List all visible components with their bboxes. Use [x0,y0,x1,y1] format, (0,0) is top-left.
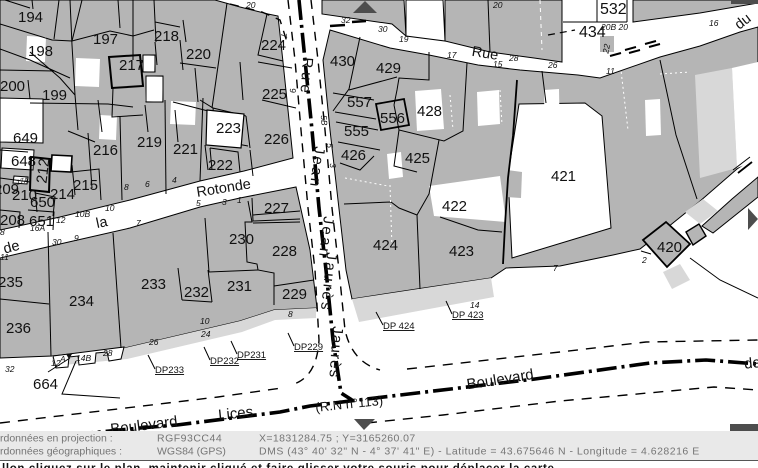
svg-text:DMS (43° 40' 32" N - 4° 37' 41: DMS (43° 40' 32" N - 4° 37' 41" E) - Lat… [259,446,700,458]
svg-text:8: 8 [0,227,5,237]
svg-text:223: 223 [216,120,241,137]
svg-text:8: 8 [124,182,129,192]
svg-text:229: 229 [282,286,307,303]
svg-text:226: 226 [264,131,289,148]
svg-text:648: 648 [11,153,36,170]
svg-text:232: 232 [184,284,209,301]
svg-text:10: 10 [105,203,115,213]
svg-text:220: 220 [186,46,211,63]
svg-text:20: 20 [245,0,256,10]
svg-text:199: 199 [42,87,67,104]
svg-text:DP 423: DP 423 [452,310,484,321]
svg-text:WGS84 (GPS): WGS84 (GPS) [157,446,226,458]
svg-text:DP229: DP229 [294,342,323,353]
svg-text:24: 24 [200,329,211,339]
svg-text:19: 19 [399,34,409,44]
svg-text:233: 233 [141,276,166,293]
svg-text:11: 11 [0,252,9,262]
svg-text:228: 228 [272,243,297,260]
svg-text:230: 230 [229,231,254,248]
svg-text:428: 428 [417,103,442,120]
svg-text:225: 225 [262,86,287,103]
svg-text:DP 424: DP 424 [383,321,415,332]
svg-text:216: 216 [93,142,118,159]
svg-text:426: 426 [341,147,366,164]
svg-text:421: 421 [551,168,576,185]
svg-text:RGF93CC44: RGF93CC44 [157,433,222,445]
svg-text:424: 424 [373,237,398,254]
svg-text:26: 26 [547,60,558,70]
svg-text:6: 6 [145,179,150,189]
svg-text:224: 224 [261,37,286,54]
svg-text:4: 4 [172,175,177,185]
svg-text:200: 200 [0,78,25,95]
svg-text:3: 3 [222,197,227,207]
svg-text:420: 420 [657,239,682,256]
svg-text:rdonnées en projection :: rdonnées en projection : [0,433,113,445]
svg-text:7: 7 [136,218,141,228]
svg-text:649: 649 [13,130,38,147]
svg-text:197: 197 [93,31,118,48]
svg-text:236: 236 [6,320,31,337]
svg-text:5B: 5B [319,115,330,127]
svg-text:221: 221 [173,141,198,158]
svg-text:423: 423 [449,243,474,260]
svg-text:Jaurès: Jaurès [325,326,346,379]
svg-text:664: 664 [33,376,58,393]
svg-text:5: 5 [196,198,201,208]
svg-text:650: 650 [30,194,55,211]
svg-text:8: 8 [288,309,293,319]
svg-text:555: 555 [344,123,369,140]
svg-text:llon cliquez sur le plan, main: llon cliquez sur le plan, maintenir cliq… [2,463,555,468]
svg-text:194: 194 [18,9,43,26]
svg-text:7: 7 [553,263,558,273]
svg-text:de: de [743,354,758,373]
svg-text:217: 217 [119,57,144,74]
svg-text:20B 20: 20B 20 [600,22,628,32]
svg-text:11: 11 [606,66,615,76]
svg-text:1: 1 [237,195,242,205]
svg-text:218: 218 [154,28,179,45]
svg-text:227: 227 [264,200,289,217]
svg-text:235: 235 [0,274,23,291]
svg-text:14: 14 [470,300,480,310]
svg-text:15: 15 [493,59,503,69]
svg-text:Lices: Lices [217,403,254,424]
svg-text:212: 212 [33,157,53,184]
svg-text:12: 12 [56,215,66,225]
svg-text:30: 30 [52,237,62,247]
svg-text:422: 422 [442,198,467,215]
svg-text:222: 222 [208,157,233,174]
svg-text:Rue: Rue [296,57,316,98]
svg-text:557: 557 [347,94,372,111]
svg-text:231: 231 [227,278,252,295]
svg-text:2: 2 [641,255,647,265]
svg-text:430: 430 [330,53,355,70]
svg-text:10B: 10B [75,209,90,219]
svg-text:215: 215 [73,177,98,194]
svg-text:17: 17 [447,50,457,60]
svg-text:DP232: DP232 [210,356,239,367]
svg-text:532: 532 [600,1,627,18]
svg-text:425: 425 [405,150,430,167]
svg-text:556: 556 [380,110,405,127]
svg-text:X=1831284.75 ; Y=3165260.07: X=1831284.75 ; Y=3165260.07 [259,433,416,445]
svg-text:28: 28 [102,348,113,358]
svg-text:219: 219 [137,134,162,151]
svg-text:DP231: DP231 [237,350,266,361]
svg-text:28: 28 [508,53,519,63]
svg-text:rdonnées géographiques :: rdonnées géographiques : [0,446,122,458]
svg-text:198: 198 [28,43,53,60]
svg-text:429: 429 [376,60,401,77]
svg-text:DP233: DP233 [155,365,184,376]
svg-text:26: 26 [148,337,159,347]
svg-text:32: 32 [5,364,15,374]
svg-text:30: 30 [378,24,388,34]
svg-text:20: 20 [492,0,503,10]
svg-text:234: 234 [69,293,94,310]
svg-text:16A: 16A [30,223,45,233]
svg-text:22: 22 [600,43,612,55]
svg-text:16: 16 [709,18,719,28]
svg-text:14B: 14B [76,353,91,363]
svg-text:10: 10 [200,316,210,326]
svg-text:A: A [59,354,66,364]
svg-text:32: 32 [341,15,351,25]
svg-text:9: 9 [74,233,79,243]
